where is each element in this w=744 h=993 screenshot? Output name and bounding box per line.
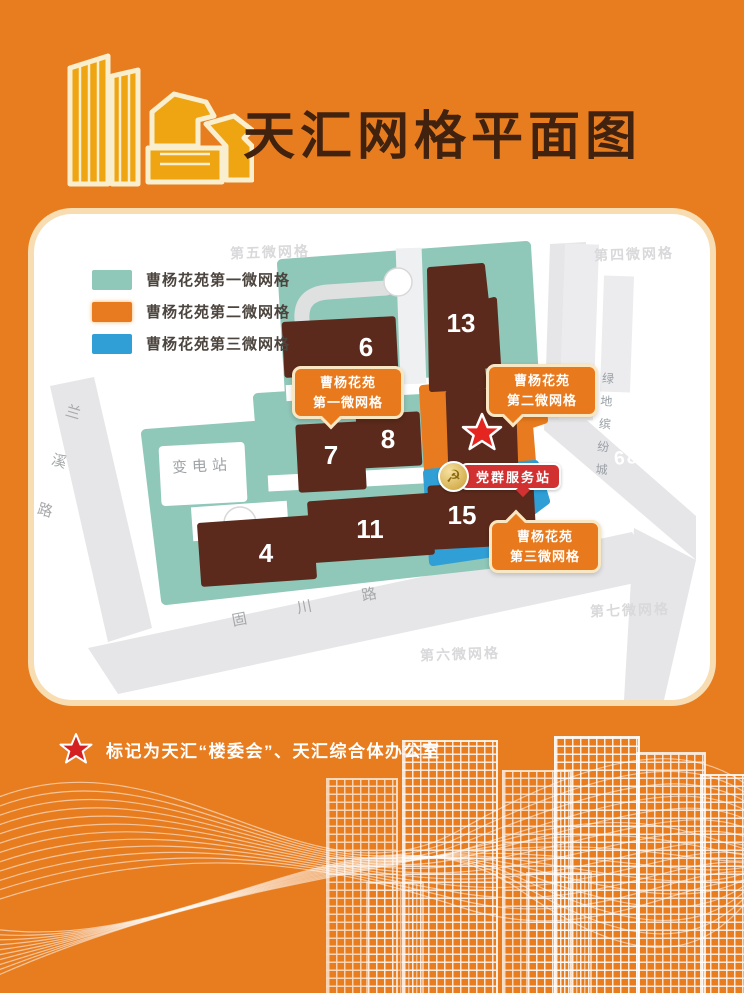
adjacent-grid4-label: 第四微网格 bbox=[594, 243, 675, 266]
adjacent-grid6-label: 第六微网格 bbox=[420, 643, 501, 666]
legend-label: 曹杨花苑第三微网格 bbox=[146, 333, 290, 354]
callout-micro-grid-2: 曹杨花苑 第二微网格 bbox=[486, 364, 598, 417]
callout-line1: 曹杨花苑 bbox=[299, 373, 397, 393]
callout-line2: 第一微网格 bbox=[299, 393, 397, 413]
substation-label: 变电站 bbox=[171, 453, 232, 477]
callout-micro-grid-1: 曹杨花苑 第一微网格 bbox=[292, 366, 404, 419]
svg-text:4: 4 bbox=[259, 538, 274, 568]
footnote: 标记为天汇“楼委会”、天汇综合体办公室 bbox=[58, 732, 441, 766]
legend: 曹杨花苑第一微网格 曹杨花苑第二微网格 曹杨花苑第三微网格 bbox=[92, 269, 290, 365]
adjacent-grid5-label: 第五微网格 bbox=[230, 241, 311, 264]
legend-swatch-orange bbox=[92, 302, 132, 322]
landmark-circle-top bbox=[384, 268, 412, 296]
buildings-logo-icon bbox=[56, 50, 254, 192]
callout-micro-grid-3: 曹杨花苑 第三微网格 bbox=[489, 520, 601, 573]
legend-item-grid2: 曹杨花苑第二微网格 bbox=[92, 301, 290, 322]
legend-swatch-teal bbox=[92, 270, 132, 290]
callout-line2: 第三微网格 bbox=[496, 547, 594, 567]
poster: { "poster": { "title": "天汇网格平面图", "footn… bbox=[0, 0, 744, 993]
callout-line1: 曹杨花苑 bbox=[493, 371, 591, 391]
svg-text:8: 8 bbox=[381, 424, 395, 454]
callout-line2: 第二微网格 bbox=[493, 391, 591, 411]
svg-text:15: 15 bbox=[448, 500, 477, 530]
party-service-station-label: 党群服务站 bbox=[460, 463, 561, 490]
building-4 bbox=[200, 518, 314, 584]
party-emblem-icon: ☭ bbox=[438, 461, 469, 492]
legend-swatch-blue bbox=[92, 334, 132, 354]
svg-text:13: 13 bbox=[447, 308, 476, 338]
svg-text:11: 11 bbox=[356, 514, 384, 544]
callout-line1: 曹杨花苑 bbox=[496, 527, 594, 547]
adjacent-grid7-label: 第七微网格 bbox=[590, 599, 671, 622]
map-card: 6 13 7 8 4 11 15 曹杨花苑第一微网格 曹杨花苑第二微网格 曹杨花… bbox=[34, 214, 710, 700]
legend-item-grid3: 曹杨花苑第三微网格 bbox=[92, 333, 290, 354]
page-title: 天汇网格平面图 bbox=[243, 94, 703, 169]
legend-item-grid1: 曹杨花苑第一微网格 bbox=[92, 269, 290, 290]
party-service-station-text: 党群服务站 bbox=[476, 470, 551, 485]
svg-text:6: 6 bbox=[359, 332, 373, 362]
party-service-station: ☭ 党群服务站 bbox=[438, 461, 561, 492]
legend-label: 曹杨花苑第二微网格 bbox=[146, 301, 290, 322]
footnote-star-icon bbox=[58, 732, 94, 766]
legend-label: 曹杨花苑第一微网格 bbox=[146, 269, 290, 290]
footnote-text: 标记为天汇“楼委会”、天汇综合体办公室 bbox=[106, 737, 441, 762]
svg-text:7: 7 bbox=[324, 440, 338, 470]
